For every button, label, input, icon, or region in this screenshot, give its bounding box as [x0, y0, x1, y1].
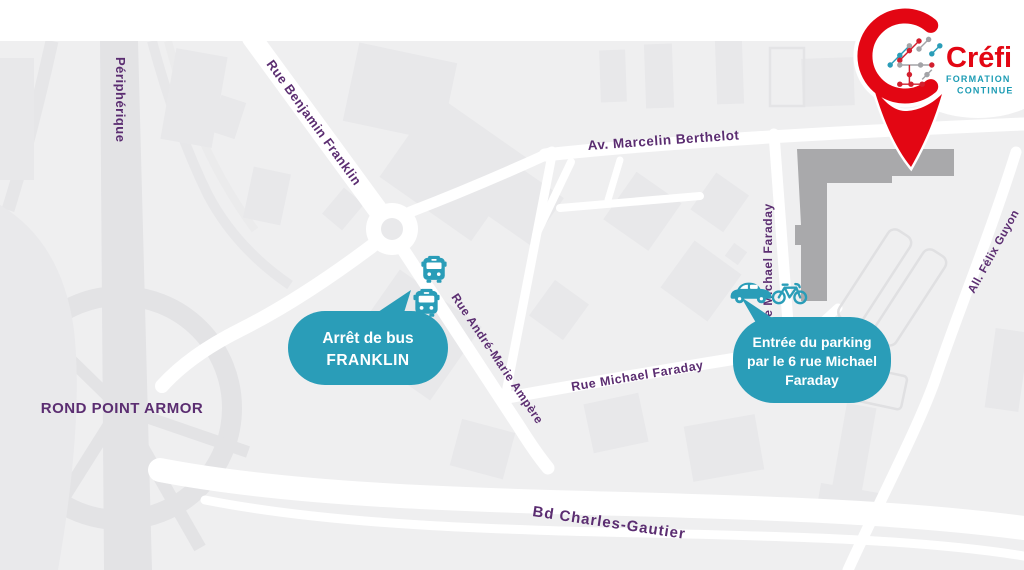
bus-stop-callout-bubble	[288, 311, 448, 385]
logo-tagline-line1: FORMATION	[946, 74, 1011, 84]
parking-callout-line3: Faraday	[785, 372, 839, 388]
street-label-peripherique: Périphérique	[113, 57, 128, 142]
mini-roundabout-island	[381, 218, 403, 240]
bus-icon	[421, 256, 446, 283]
logo-tagline-line2: CONTINUE	[957, 86, 1014, 96]
bus-stop-callout-line1: Arrêt de bus	[322, 330, 413, 347]
rond-point-armor-label: ROND POINT ARMOR	[41, 400, 203, 417]
parking-callout-line2: par le 6 rue Michael	[747, 353, 877, 369]
parking-callout-line1: Entrée du parking	[752, 334, 871, 350]
map-page: Périphérique Rue Benjamin Franklin Av. M…	[0, 0, 1024, 570]
bus-stop-callout-line2: FRANKLIN	[326, 352, 409, 369]
map-canvas: Périphérique Rue Benjamin Franklin Av. M…	[0, 0, 1024, 570]
logo-brand-text: Créfi	[946, 42, 1012, 74]
